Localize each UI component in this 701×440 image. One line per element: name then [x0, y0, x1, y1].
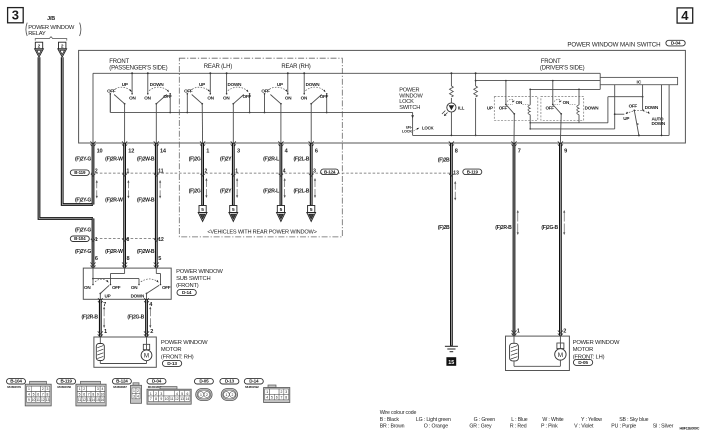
svg-text:UP: UP — [487, 105, 493, 110]
svg-text:2: 2 — [42, 387, 44, 391]
svg-text:MU801556: MU801556 — [57, 385, 71, 389]
svg-text:D-13: D-13 — [167, 361, 177, 367]
svg-text:UP: UP — [122, 82, 128, 87]
svg-text:MU801592: MU801592 — [245, 385, 259, 389]
svg-text:15: 15 — [448, 360, 454, 366]
svg-text:MU801579: MU801579 — [7, 385, 21, 389]
svg-text:UP: UP — [623, 116, 629, 121]
svg-text:(F)2G-B: (F)2G-B — [127, 315, 144, 321]
svg-text:2: 2 — [150, 329, 153, 335]
svg-text:B-104: B-104 — [10, 379, 22, 384]
svg-text:OFF: OFF — [261, 89, 270, 94]
svg-text:SI : Silver: SI : Silver — [653, 423, 674, 429]
svg-text:LG : Light green: LG : Light green — [416, 417, 451, 423]
svg-text:P : Pink: P : Pink — [541, 423, 558, 429]
svg-text:D-14: D-14 — [182, 290, 192, 295]
svg-text:5: 5 — [158, 256, 161, 262]
svg-text:POWER WINDOW MAIN SWITCH: POWER WINDOW MAIN SWITCH — [567, 41, 660, 48]
svg-text:5: 5 — [181, 392, 183, 396]
svg-text:4: 4 — [283, 169, 286, 175]
svg-text:(F)2R-L: (F)2R-L — [263, 156, 279, 162]
svg-text:4: 4 — [176, 392, 178, 396]
svg-text:B-119: B-119 — [74, 170, 86, 175]
svg-text:REAR (RH): REAR (RH) — [281, 64, 310, 70]
svg-text:OFF: OFF — [184, 89, 193, 94]
svg-text:7: 7 — [42, 393, 44, 397]
svg-text:B-124: B-124 — [324, 169, 336, 174]
svg-text:D-04: D-04 — [671, 41, 681, 47]
svg-text:13: 13 — [180, 397, 184, 401]
svg-text:(FRONT: RH): (FRONT: RH) — [161, 355, 194, 361]
svg-text:H8F11E009C: H8F11E009C — [680, 427, 700, 431]
svg-text:3: 3 — [12, 8, 19, 23]
svg-text:G : Green: G : Green — [474, 417, 496, 423]
svg-text:Wire colour code: Wire colour code — [380, 410, 417, 416]
svg-text:8: 8 — [285, 396, 287, 400]
svg-text:9: 9 — [97, 393, 99, 397]
svg-text:(F)2W-B: (F)2W-B — [137, 197, 155, 203]
svg-text:5: 5 — [79, 393, 81, 397]
svg-text:OFF: OFF — [163, 94, 172, 99]
svg-text:11: 11 — [170, 397, 174, 401]
svg-text:(F)2B: (F)2B — [438, 158, 450, 164]
svg-text:OFF: OFF — [107, 89, 116, 94]
svg-text:1: 1 — [95, 237, 98, 243]
svg-text:OFF: OFF — [545, 105, 554, 110]
svg-text:(F)2R-L: (F)2R-L — [263, 188, 279, 194]
svg-text:12: 12 — [82, 398, 86, 402]
svg-text:2: 2 — [206, 393, 208, 397]
svg-text:L : Blue: L : Blue — [511, 417, 527, 423]
svg-text:12: 12 — [41, 398, 45, 402]
svg-text:(F)2Y: (F)2Y — [220, 188, 232, 194]
svg-text:4: 4 — [137, 395, 139, 399]
svg-text:ON: ON — [129, 96, 136, 101]
svg-text:3: 3 — [160, 392, 162, 396]
svg-text:2: 2 — [155, 392, 157, 396]
svg-text:M: M — [558, 352, 563, 359]
svg-text:10: 10 — [32, 398, 36, 402]
svg-text:SUB SWITCH: SUB SWITCH — [176, 276, 210, 282]
svg-text:D-05: D-05 — [199, 379, 209, 384]
svg-text:12: 12 — [158, 237, 164, 243]
svg-text:OFF: OFF — [243, 94, 252, 99]
svg-text:UP: UP — [199, 82, 205, 87]
svg-text:6: 6 — [276, 396, 278, 400]
svg-text:1: 1 — [127, 169, 130, 175]
svg-text:PU : Purple: PU : Purple — [611, 423, 636, 429]
svg-text:OFF: OFF — [112, 285, 121, 290]
svg-text:7: 7 — [281, 396, 283, 400]
svg-text:OFF: OFF — [499, 105, 508, 110]
svg-text:1: 1 — [133, 389, 135, 393]
svg-text:V : Violet: V : Violet — [574, 423, 594, 429]
svg-text:ON: ON — [131, 285, 138, 290]
svg-text:16: 16 — [101, 398, 105, 402]
svg-text:8: 8 — [127, 256, 130, 262]
svg-text:14: 14 — [185, 397, 189, 401]
svg-text:UP: UP — [105, 294, 111, 299]
svg-text:(F)2G: (F)2G — [189, 156, 201, 162]
svg-text:B-119: B-119 — [60, 379, 72, 384]
svg-text:MOTOR: MOTOR — [161, 347, 181, 353]
svg-text:6: 6 — [95, 256, 98, 262]
svg-text:7: 7 — [518, 149, 521, 155]
svg-text:(F)2W-B: (F)2W-B — [137, 156, 155, 162]
svg-text:12: 12 — [128, 149, 134, 155]
svg-text:3: 3 — [237, 149, 240, 155]
svg-text:FRONT: FRONT — [109, 59, 129, 65]
svg-text:DOWN: DOWN — [585, 105, 600, 110]
svg-text:LOCK: LOCK — [422, 126, 435, 131]
svg-text:(F)2R-B: (F)2R-B — [82, 315, 99, 321]
svg-text:(F)2Y: (F)2Y — [220, 156, 232, 162]
svg-text:OFF: OFF — [162, 285, 171, 290]
svg-text:14: 14 — [91, 398, 95, 402]
svg-text:POWER WINDOW: POWER WINDOW — [28, 25, 75, 31]
svg-text:M: M — [144, 353, 149, 360]
svg-text:ON: ON — [516, 100, 523, 105]
svg-text:(DRIVER'S SIDE): (DRIVER'S SIDE) — [540, 66, 585, 72]
svg-text:6: 6 — [83, 393, 85, 397]
svg-text:1: 1 — [79, 387, 81, 391]
svg-text:BR : Brown: BR : Brown — [380, 423, 405, 429]
svg-text:(PASSENGER'S SIDE): (PASSENGER'S SIDE) — [109, 65, 167, 71]
svg-text:POWER WINDOW: POWER WINDOW — [161, 340, 208, 346]
svg-text:<VEHICLES WITH REAR POWER WIND: <VEHICLES WITH REAR POWER WINDOW> — [207, 229, 316, 235]
svg-text:1: 1 — [235, 169, 238, 175]
svg-text:D-14: D-14 — [249, 379, 259, 384]
svg-text:SWITCH: SWITCH — [399, 105, 420, 111]
svg-text:3: 3 — [47, 387, 49, 391]
svg-text:(FRONT): (FRONT) — [176, 283, 199, 289]
svg-text:REAR (LH): REAR (LH) — [204, 64, 232, 70]
svg-text:7: 7 — [88, 393, 90, 397]
svg-text:9: 9 — [160, 397, 162, 401]
svg-text:FRONT: FRONT — [541, 59, 561, 65]
svg-text:9: 9 — [28, 398, 30, 402]
svg-text:1: 1 — [266, 390, 268, 394]
svg-text:SB : Sky blue: SB : Sky blue — [619, 417, 648, 423]
svg-text:2: 2 — [83, 387, 85, 391]
svg-text:(F)2Y-G: (F)2Y-G — [75, 249, 91, 255]
svg-text:ON: ON — [144, 96, 151, 101]
svg-text:2: 2 — [231, 393, 233, 397]
svg-text:2: 2 — [205, 169, 208, 175]
svg-text:DOWN: DOWN — [306, 82, 321, 87]
svg-text:15: 15 — [96, 398, 100, 402]
svg-text:ON: ON — [223, 96, 230, 101]
svg-text:D-04: D-04 — [152, 379, 162, 384]
svg-text:(F)2R-W: (F)2R-W — [105, 156, 123, 162]
svg-text:DOWN: DOWN — [150, 82, 165, 87]
svg-text:MOTOR: MOTOR — [573, 347, 593, 353]
svg-text:POWER WINDOW: POWER WINDOW — [573, 340, 620, 346]
svg-text:B-119: B-119 — [467, 169, 479, 174]
svg-text:MU803687: MU803687 — [113, 385, 127, 389]
svg-text:6: 6 — [315, 149, 318, 155]
svg-text:2: 2 — [281, 390, 283, 394]
svg-text:1: 1 — [28, 387, 30, 391]
svg-text:8: 8 — [155, 397, 157, 401]
svg-text:POWER WINDOW: POWER WINDOW — [176, 269, 223, 275]
svg-text:13: 13 — [46, 398, 50, 402]
svg-text:B-124: B-124 — [116, 379, 128, 384]
svg-text:11: 11 — [158, 169, 164, 175]
svg-text:J/B: J/B — [47, 16, 55, 22]
svg-text:4: 4 — [681, 8, 689, 23]
svg-text:8: 8 — [92, 393, 94, 397]
svg-text:(F)2G: (F)2G — [189, 188, 201, 194]
svg-text:(F)2R-W: (F)2R-W — [105, 197, 123, 203]
svg-text:ON: ON — [301, 96, 308, 101]
svg-text:8: 8 — [127, 237, 130, 243]
svg-text:(F)2Y-G: (F)2Y-G — [75, 156, 91, 162]
svg-text:3: 3 — [97, 387, 99, 391]
svg-text:6: 6 — [186, 392, 188, 396]
svg-text:4: 4 — [28, 393, 30, 397]
svg-text:ILL: ILL — [458, 106, 465, 111]
svg-text:(F)2R-B: (F)2R-B — [495, 225, 512, 231]
svg-text:B : Black: B : Black — [380, 417, 400, 423]
svg-text:LOCK: LOCK — [402, 130, 412, 134]
svg-text:4: 4 — [101, 387, 103, 391]
svg-text:1: 1 — [150, 392, 152, 396]
svg-text:11: 11 — [78, 398, 82, 402]
svg-text:2: 2 — [95, 169, 98, 175]
svg-text:5: 5 — [271, 396, 273, 400]
svg-text:ON: ON — [207, 96, 214, 101]
svg-text:ON: ON — [84, 285, 91, 290]
svg-text:13: 13 — [453, 171, 459, 177]
svg-text:1: 1 — [225, 393, 227, 397]
svg-text:R : Red: R : Red — [510, 423, 527, 429]
svg-text:11: 11 — [36, 398, 40, 402]
svg-text:(F)2W-B: (F)2W-B — [137, 249, 155, 255]
svg-text:UP: UP — [277, 82, 283, 87]
svg-text:1: 1 — [517, 328, 520, 334]
svg-text:IC: IC — [636, 79, 641, 85]
svg-text:B-104: B-104 — [74, 236, 86, 241]
svg-text:GR : Grey: GR : Grey — [469, 423, 492, 429]
svg-text:10: 10 — [97, 149, 103, 155]
svg-text:3: 3 — [313, 169, 316, 175]
svg-text:1: 1 — [200, 393, 202, 397]
svg-text:6: 6 — [37, 393, 39, 397]
svg-text:5: 5 — [33, 393, 35, 397]
svg-text:10: 10 — [165, 397, 169, 401]
svg-text:7: 7 — [150, 397, 152, 401]
svg-text:8: 8 — [455, 149, 458, 155]
svg-text:10: 10 — [101, 393, 105, 397]
svg-text:RELAY: RELAY — [28, 31, 46, 37]
svg-text:12: 12 — [175, 397, 179, 401]
svg-text:OFF: OFF — [629, 104, 638, 109]
svg-text:3: 3 — [133, 395, 135, 399]
svg-text:1: 1 — [206, 149, 209, 155]
svg-text:OFF: OFF — [320, 94, 329, 99]
svg-text:Y : Yellow: Y : Yellow — [581, 417, 602, 423]
svg-text:(F)2B: (F)2B — [438, 225, 450, 231]
svg-text:4: 4 — [266, 396, 268, 400]
svg-text:DOWN: DOWN — [645, 105, 659, 110]
svg-text:(F)2R-W: (F)2R-W — [105, 249, 123, 255]
svg-text:2: 2 — [137, 389, 139, 393]
svg-text:9: 9 — [564, 149, 567, 155]
svg-text:(F)2G-B: (F)2G-B — [541, 225, 558, 231]
svg-text:3: 3 — [285, 390, 287, 394]
svg-text:ON: ON — [563, 100, 570, 105]
svg-text:DOWN: DOWN — [228, 82, 243, 87]
svg-text:(F)2Y-G: (F)2Y-G — [75, 228, 91, 234]
svg-text:13: 13 — [87, 398, 91, 402]
svg-text:7: 7 — [103, 302, 106, 308]
svg-text:(F)2L-B: (F)2L-B — [293, 188, 309, 194]
svg-text:ON: ON — [285, 96, 292, 101]
svg-text:DOWN: DOWN — [131, 294, 145, 299]
svg-text:O : Orange: O : Orange — [424, 423, 448, 429]
svg-text:D-13: D-13 — [225, 379, 235, 384]
svg-text:D-05: D-05 — [578, 360, 588, 366]
svg-text:2: 2 — [563, 328, 566, 334]
svg-text:DOWN: DOWN — [652, 121, 666, 126]
svg-text:(F)2Y-G: (F)2Y-G — [75, 197, 91, 203]
svg-text:8: 8 — [47, 393, 49, 397]
svg-text:W : White: W : White — [542, 417, 563, 423]
svg-text:(F)2L-B: (F)2L-B — [293, 156, 309, 162]
svg-text:1: 1 — [104, 329, 107, 335]
